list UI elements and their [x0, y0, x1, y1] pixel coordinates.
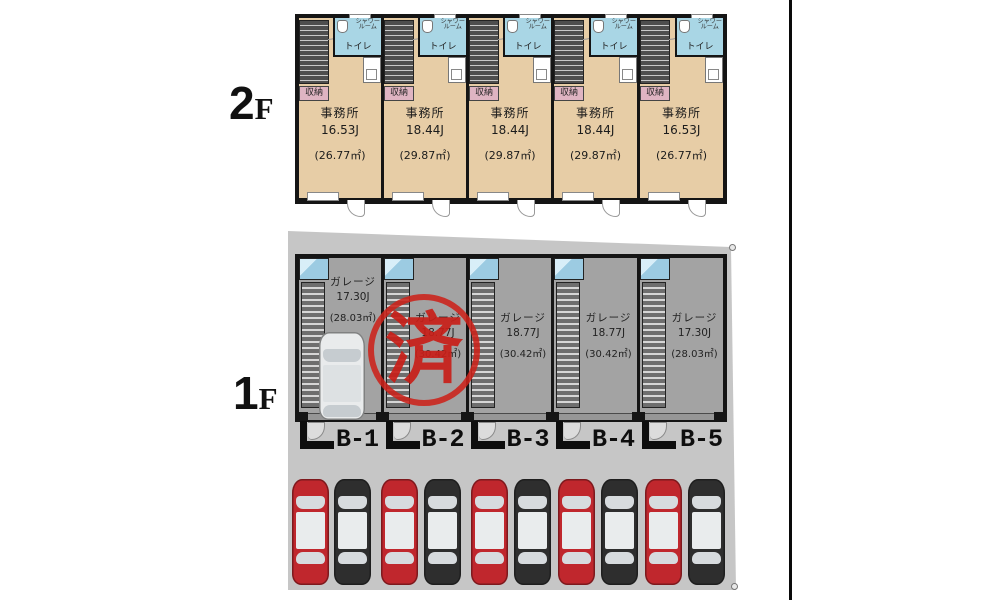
garage-info: ガレージ 17.30J (28.03㎡): [666, 310, 723, 360]
garage-window: [469, 258, 499, 280]
door-arc-icon: [347, 200, 365, 217]
page-border-line: [789, 0, 792, 600]
parked-car-red: [558, 479, 595, 585]
window: [307, 192, 339, 201]
shower-room-label: シャワールーム: [612, 19, 636, 30]
door-arc-icon: [479, 422, 496, 440]
room-size: 18.77J: [580, 327, 637, 339]
floor-2-suffix: F: [255, 91, 274, 126]
office-unit-3: シャワールーム トイレ 収納 事務所 18.44J (29.87㎡): [469, 18, 551, 200]
door-arc-icon: [308, 422, 325, 440]
door-arc-icon: [564, 422, 581, 440]
staircase: [469, 20, 499, 84]
room-info: 事務所 18.44J (29.87㎡): [384, 104, 466, 163]
staircase: [642, 282, 666, 408]
wet-area: シャワールーム トイレ: [589, 18, 637, 57]
washbasin-icon: [337, 20, 348, 33]
room-size: 18.44J: [554, 123, 637, 137]
storage-label: 収納: [299, 86, 329, 101]
room-info: 事務所 18.44J (29.87㎡): [554, 104, 637, 163]
shower-room-label: シャワールーム: [441, 19, 465, 30]
door-arc-icon: [432, 200, 450, 217]
kitchen-counter: [533, 57, 551, 83]
sink-icon: [622, 69, 633, 80]
toilet-label: トイレ: [677, 39, 723, 52]
room-size: 18.77J: [495, 327, 551, 339]
office-unit-1: シャワールーム トイレ 収納 事務所 16.53J (26.77㎡): [299, 18, 381, 200]
door-arc-icon: [688, 200, 706, 217]
room-name: 事務所: [640, 104, 723, 121]
door-arc-icon: [650, 422, 667, 440]
room-size: 17.30J: [666, 327, 723, 339]
floor-1-label: 1F: [233, 370, 278, 416]
staircase: [554, 20, 584, 84]
bay-label: B-4: [589, 425, 637, 454]
room-area: (30.42㎡): [495, 345, 551, 360]
parked-car-black: [601, 479, 638, 585]
parked-car-black: [424, 479, 461, 585]
washbasin-icon: [507, 20, 518, 33]
room-size: 16.53J: [640, 123, 723, 137]
floor-2-number: 2: [229, 77, 255, 129]
storage-label: 収納: [469, 86, 499, 101]
parked-car-red: [381, 479, 418, 585]
wet-area: シャワールーム トイレ: [675, 18, 723, 57]
garage-bay-front: B-2: [381, 416, 466, 464]
room-area: (29.87㎡): [554, 147, 637, 163]
room-size: 18.44J: [384, 123, 466, 137]
room-size: 17.30J: [325, 291, 381, 303]
office-unit-4: シャワールーム トイレ 収納 事務所 18.44J (29.87㎡): [554, 18, 637, 200]
room-info: 事務所 18.44J (29.87㎡): [469, 104, 551, 163]
room-area: (28.03㎡): [666, 345, 723, 360]
sink-icon: [708, 69, 719, 80]
bay-label: B-5: [675, 425, 727, 454]
parked-car-white: [319, 332, 365, 420]
office-unit-5: シャワールーム トイレ 収納 事務所 16.53J (26.77㎡): [640, 18, 723, 200]
staircase: [556, 282, 580, 408]
office-unit-2: シャワールーム トイレ 収納 事務所 18.44J (29.87㎡): [384, 18, 466, 200]
sink-icon: [451, 69, 462, 80]
parked-car-red: [471, 479, 508, 585]
sink-icon: [366, 69, 377, 80]
toilet-label: トイレ: [591, 39, 637, 52]
garage-unit-4: ガレージ 18.77J (30.42㎡): [554, 258, 637, 413]
window: [477, 192, 509, 201]
garage-info: ガレージ 17.30J (28.03㎡): [325, 274, 381, 324]
toilet-label: トイレ: [505, 39, 551, 52]
window: [562, 192, 594, 201]
toilet-label: トイレ: [335, 39, 381, 52]
room-name: 事務所: [469, 104, 551, 121]
wet-area: シャワールーム トイレ: [418, 18, 466, 57]
wall-segment: [386, 441, 420, 449]
bay-label: B-1: [333, 425, 381, 454]
floor-2-label: 2F: [229, 80, 274, 126]
room-area: (29.87㎡): [469, 147, 551, 163]
garage-window: [554, 258, 584, 280]
storage-label: 収納: [640, 86, 670, 101]
bay-label: B-2: [419, 425, 466, 454]
room-name: ガレージ: [666, 310, 723, 325]
garage-window: [384, 258, 414, 280]
shower-room-label: シャワールーム: [526, 19, 550, 30]
wall-segment: [642, 441, 676, 449]
room-area: (28.03㎡): [325, 309, 381, 324]
room-name: 事務所: [384, 104, 466, 121]
garage-bay-front: B-5: [637, 416, 727, 464]
shower-room-label: シャワールーム: [698, 19, 722, 30]
garage-info: ガレージ 18.77J (30.42㎡): [580, 310, 637, 360]
room-name: ガレージ: [580, 310, 637, 325]
second-floor-building: シャワールーム トイレ 収納 事務所 16.53J (26.77㎡) シャワー: [295, 14, 727, 204]
garage-window: [640, 258, 670, 280]
room-area: (30.42㎡): [580, 345, 637, 360]
kitchen-counter: [363, 57, 381, 83]
staircase: [640, 20, 670, 84]
toilet-label: トイレ: [420, 39, 466, 52]
washbasin-icon: [679, 20, 690, 33]
staircase: [299, 20, 329, 84]
sink-icon: [536, 69, 547, 80]
parked-car-red: [645, 479, 682, 585]
garage-unit-3: ガレージ 18.77J (30.42㎡): [469, 258, 551, 413]
room-info: 事務所 16.53J (26.77㎡): [299, 104, 381, 163]
boundary-marker: [729, 244, 736, 251]
wet-area: シャワールーム トイレ: [333, 18, 381, 57]
room-area: (26.77㎡): [640, 147, 723, 163]
room-name: ガレージ: [325, 274, 381, 289]
sold-stamp: 済: [368, 294, 480, 406]
room-name: 事務所: [554, 104, 637, 121]
garage-unit-5: ガレージ 17.30J (28.03㎡): [640, 258, 723, 413]
sold-stamp-character: 済: [385, 311, 463, 389]
garage-bay-front: B-1: [295, 416, 381, 464]
kitchen-counter: [619, 57, 637, 83]
boundary-marker: [731, 583, 738, 590]
window: [648, 192, 680, 201]
door-arc-icon: [394, 422, 411, 440]
room-area: (26.77㎡): [299, 147, 381, 163]
door-arc-icon: [602, 200, 620, 217]
parked-car-black: [688, 479, 725, 585]
shower-room-label: シャワールーム: [356, 19, 380, 30]
parked-car-black: [334, 479, 371, 585]
room-area: (29.87㎡): [384, 147, 466, 163]
door-arc-icon: [517, 200, 535, 217]
first-floor-building: ガレージ 17.30J (28.03㎡) ガレージ 18.77J (30.42㎡…: [295, 254, 727, 422]
storage-label: 収納: [554, 86, 584, 101]
room-size: 16.53J: [299, 123, 381, 137]
wall-segment: [556, 441, 590, 449]
garage-bay-front: B-3: [466, 416, 551, 464]
parked-car-red: [292, 479, 329, 585]
floorplan-canvas: 2F シャワールーム トイレ 収納 事務所 16.53J (: [0, 0, 1000, 600]
wall-segment: [471, 441, 505, 449]
kitchen-counter: [448, 57, 466, 83]
parked-car-black: [514, 479, 551, 585]
room-size: 18.44J: [469, 123, 551, 137]
room-name: 事務所: [299, 104, 381, 121]
floor-1-suffix: F: [259, 381, 278, 416]
room-name: ガレージ: [495, 310, 551, 325]
washbasin-icon: [593, 20, 604, 33]
wet-area: シャワールーム トイレ: [503, 18, 551, 57]
wall-segment: [300, 441, 334, 449]
kitchen-counter: [705, 57, 723, 83]
garage-bay-front: B-4: [551, 416, 637, 464]
garage-info: ガレージ 18.77J (30.42㎡): [495, 310, 551, 360]
bay-label: B-3: [504, 425, 551, 454]
washbasin-icon: [422, 20, 433, 33]
staircase: [384, 20, 414, 84]
room-info: 事務所 16.53J (26.77㎡): [640, 104, 723, 163]
window: [392, 192, 424, 201]
floor-1-number: 1: [233, 367, 259, 419]
storage-label: 収納: [384, 86, 414, 101]
